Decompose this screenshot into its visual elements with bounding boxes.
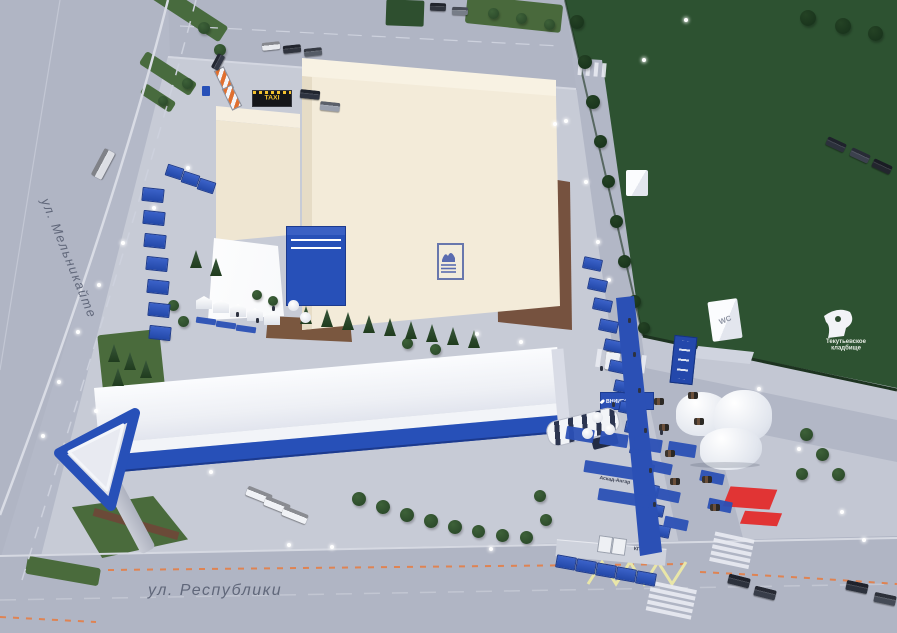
street-light <box>97 283 101 287</box>
person <box>612 402 615 407</box>
fence-panel <box>149 325 172 341</box>
tree-icon <box>268 296 278 306</box>
tree-icon <box>472 525 485 538</box>
street-light <box>41 434 45 438</box>
cemetery-label: Текутьевское кладбище <box>822 338 870 351</box>
tree-icon <box>638 322 650 334</box>
taxi-sign: TAXI <box>252 90 292 107</box>
crosswalk <box>709 532 754 570</box>
street-light <box>475 332 479 336</box>
street-light <box>840 510 844 514</box>
tree-icon <box>496 529 509 542</box>
street-light <box>94 409 98 413</box>
atv-exhibit <box>654 398 664 405</box>
person <box>638 388 641 393</box>
tent-shadow <box>690 462 760 468</box>
entrance-block <box>286 226 346 306</box>
person <box>644 428 647 433</box>
street-light <box>596 240 600 244</box>
tree-icon <box>488 8 499 19</box>
tree-icon <box>252 290 262 300</box>
tree-icon <box>376 500 390 514</box>
tree-icon <box>610 215 623 228</box>
gate <box>611 537 627 556</box>
umbrella-table <box>604 424 615 435</box>
fence-panel <box>144 233 167 249</box>
umbrella-table <box>592 412 603 423</box>
street-light <box>330 545 334 549</box>
red-stripe <box>740 511 782 527</box>
white-cube <box>626 170 648 196</box>
car <box>320 101 341 112</box>
tree-icon <box>198 22 210 34</box>
tree-icon <box>594 135 607 148</box>
atv-exhibit <box>694 418 704 425</box>
tree-icon <box>835 18 851 34</box>
street-light <box>862 538 866 542</box>
car <box>430 3 446 12</box>
fence-panel <box>141 187 164 203</box>
tree-icon <box>796 468 808 480</box>
tree-icon <box>570 15 584 29</box>
tree-icon <box>400 508 414 522</box>
street-light <box>519 340 523 344</box>
parking-sign <box>202 86 210 96</box>
tree-icon <box>602 175 615 188</box>
atv-exhibit <box>710 504 720 511</box>
street-light <box>152 206 156 210</box>
street-light <box>797 447 801 451</box>
drop-icon <box>600 398 605 403</box>
street-light <box>584 180 588 184</box>
atv-exhibit <box>688 392 698 399</box>
tree-icon <box>800 428 813 441</box>
wc-cube: WC <box>707 298 742 342</box>
fence-panel <box>143 210 166 226</box>
car <box>452 7 468 16</box>
cemetery-icon <box>818 306 858 340</box>
street-light <box>684 18 688 22</box>
person <box>649 468 652 473</box>
street-light <box>757 387 761 391</box>
trailer-markings <box>676 341 691 380</box>
person <box>653 502 656 507</box>
tree-icon <box>402 338 413 349</box>
tree-icon <box>868 26 883 41</box>
tree-icon <box>178 316 189 327</box>
logo-art <box>439 245 458 274</box>
fence-panel <box>145 256 168 272</box>
tree-icon <box>534 490 546 502</box>
fence-panel <box>147 302 170 318</box>
tree-icon <box>540 514 552 526</box>
wc-label: WC <box>718 314 733 326</box>
tree-icon <box>424 514 438 528</box>
tree-icon <box>352 492 366 506</box>
umbrella-table <box>582 428 593 439</box>
person <box>628 318 631 323</box>
street-light <box>287 543 291 547</box>
taxi-label: TAXI <box>259 94 285 101</box>
person <box>236 312 239 317</box>
umbrella-table <box>300 312 311 323</box>
logo-emblem <box>437 243 464 280</box>
tree-icon <box>158 96 168 106</box>
street-light <box>489 547 493 551</box>
street-light <box>209 470 213 474</box>
street-light <box>121 241 125 245</box>
street-label-respubliki: ул. Республики <box>148 582 282 600</box>
triangle-pod <box>45 398 155 518</box>
street-light <box>642 58 646 62</box>
tree-icon <box>516 13 527 24</box>
person <box>600 366 603 371</box>
tree-icon <box>832 468 845 481</box>
street-light <box>564 119 568 123</box>
person <box>660 430 663 435</box>
tree-icon <box>448 520 462 534</box>
person <box>256 318 259 323</box>
tree-icon <box>182 78 193 89</box>
tree-icon <box>520 531 533 544</box>
entrance-stripe <box>291 247 341 249</box>
person <box>272 306 275 311</box>
fence-panel <box>146 279 169 295</box>
tree-icon <box>544 19 555 30</box>
street-light <box>76 330 80 334</box>
street-light <box>186 166 190 170</box>
tree-icon <box>618 255 631 268</box>
atv-exhibit <box>665 450 675 457</box>
tree-icon <box>586 95 600 109</box>
entrance-stripe <box>291 239 341 241</box>
tree-icon <box>816 448 829 461</box>
street-light <box>57 380 61 384</box>
street-light <box>553 122 557 126</box>
person <box>633 352 636 357</box>
atv-exhibit <box>670 478 680 485</box>
tree-icon <box>430 344 441 355</box>
site-render: ВНИИГАЗ WC Текутьевское кладбище КПП Аск… <box>0 0 897 633</box>
atv-exhibit <box>702 476 712 483</box>
car <box>300 89 321 100</box>
wc-path <box>694 346 754 364</box>
tree-icon <box>800 10 816 26</box>
umbrella-table <box>288 300 299 311</box>
tree-icon <box>578 55 592 69</box>
